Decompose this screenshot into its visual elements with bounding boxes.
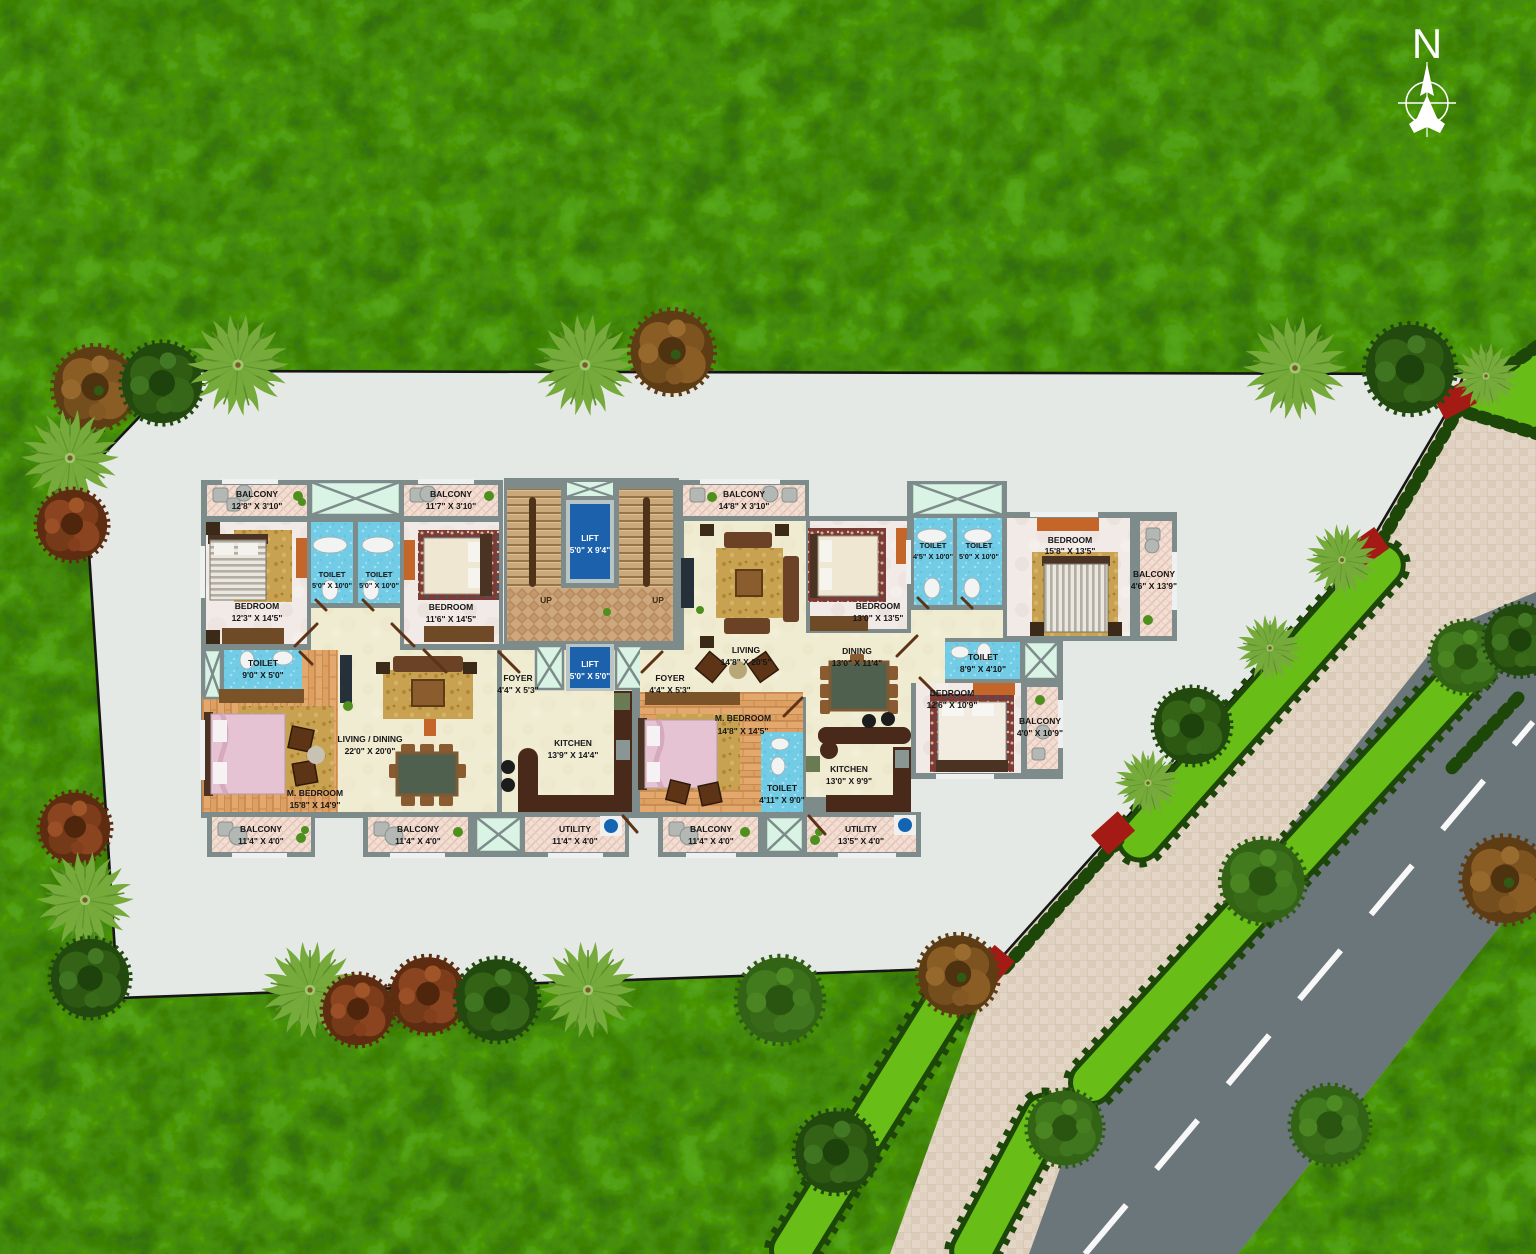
svg-text:22'0" X 20'0": 22'0" X 20'0" (345, 746, 396, 756)
svg-text:4'4" X 5'3": 4'4" X 5'3" (497, 685, 538, 695)
svg-text:KITCHEN: KITCHEN (830, 764, 868, 774)
svg-text:BALCONY: BALCONY (430, 489, 472, 499)
svg-text:11'7" X 3'10": 11'7" X 3'10" (426, 501, 476, 511)
svg-text:4'5" X 10'0": 4'5" X 10'0" (913, 552, 954, 561)
svg-text:LIFT: LIFT (581, 533, 599, 543)
svg-text:13'0" X 13'5": 13'0" X 13'5" (853, 613, 904, 623)
svg-text:4'11" X 9'0": 4'11" X 9'0" (759, 795, 805, 805)
svg-text:BALCONY: BALCONY (397, 824, 439, 834)
svg-text:4'4" X 5'3": 4'4" X 5'3" (649, 685, 690, 695)
svg-text:BEDROOM: BEDROOM (429, 602, 473, 612)
svg-text:11'4" X 4'0": 11'4" X 4'0" (688, 836, 734, 846)
svg-text:TOILET: TOILET (319, 570, 346, 579)
svg-text:5'0" X 5'0": 5'0" X 5'0" (570, 671, 610, 681)
svg-text:13'5" X 4'0": 13'5" X 4'0" (838, 836, 884, 846)
svg-text:15'8" X 13'5": 15'8" X 13'5" (1045, 546, 1096, 556)
svg-text:13'0" X 9'9": 13'0" X 9'9" (826, 776, 872, 786)
svg-text:15'8" X 14'9": 15'8" X 14'9" (290, 800, 341, 810)
svg-text:11'4" X 4'0": 11'4" X 4'0" (238, 836, 284, 846)
svg-text:14'8" X 20'5": 14'8" X 20'5" (721, 657, 772, 667)
svg-text:DINING: DINING (842, 646, 872, 656)
svg-text:BEDROOM: BEDROOM (1048, 535, 1092, 545)
svg-text:BALCONY: BALCONY (236, 489, 278, 499)
svg-text:BEDROOM: BEDROOM (856, 601, 900, 611)
svg-text:FOYER: FOYER (655, 673, 684, 683)
svg-text:BALCONY: BALCONY (240, 824, 282, 834)
svg-text:5'0" X 10'0": 5'0" X 10'0" (312, 581, 353, 590)
svg-text:LIVING / DINING: LIVING / DINING (337, 734, 403, 744)
svg-text:11'4" X 4'0": 11'4" X 4'0" (552, 836, 598, 846)
svg-text:LIFT: LIFT (581, 659, 599, 669)
svg-text:TOILET: TOILET (248, 658, 279, 668)
svg-text:M. BEDROOM: M. BEDROOM (715, 713, 771, 723)
svg-text:BEDROOM: BEDROOM (235, 601, 279, 611)
svg-text:TOILET: TOILET (966, 541, 993, 550)
svg-text:BALCONY: BALCONY (1019, 716, 1061, 726)
svg-text:5'0" X 10'0": 5'0" X 10'0" (359, 581, 400, 590)
svg-text:M. BEDROOM: M. BEDROOM (287, 788, 343, 798)
svg-text:12'3" X 14'5": 12'3" X 14'5" (232, 613, 283, 623)
svg-text:BALCONY: BALCONY (723, 489, 765, 499)
svg-text:13'0" X 11'4": 13'0" X 11'4" (832, 658, 882, 668)
svg-text:5'0" X 9'4": 5'0" X 9'4" (570, 545, 610, 555)
svg-text:KITCHEN: KITCHEN (554, 738, 592, 748)
svg-text:4'0" X 10'9": 4'0" X 10'9" (1017, 728, 1063, 738)
svg-text:14'8" X 3'10": 14'8" X 3'10" (719, 501, 770, 511)
svg-text:N: N (1412, 20, 1442, 67)
svg-text:TOILET: TOILET (366, 570, 393, 579)
svg-text:TOILET: TOILET (767, 783, 798, 793)
svg-text:13'9" X 14'4": 13'9" X 14'4" (548, 750, 599, 760)
svg-text:UTILITY: UTILITY (559, 824, 591, 834)
svg-text:BALCONY: BALCONY (1133, 569, 1175, 579)
svg-text:BEDROOM: BEDROOM (930, 688, 974, 698)
svg-text:11'4" X 4'0": 11'4" X 4'0" (395, 836, 441, 846)
svg-text:TOILET: TOILET (968, 652, 999, 662)
svg-text:UTILITY: UTILITY (845, 824, 877, 834)
svg-text:12'8" X 3'10": 12'8" X 3'10" (232, 501, 283, 511)
svg-text:12'6" X 10'9": 12'6" X 10'9" (927, 700, 978, 710)
svg-text:5'0" X 10'0": 5'0" X 10'0" (959, 552, 1000, 561)
svg-text:4'6" X 13'9": 4'6" X 13'9" (1131, 581, 1177, 591)
svg-text:LIVING: LIVING (732, 645, 761, 655)
svg-text:UP: UP (540, 595, 552, 605)
svg-text:9'0" X 5'0": 9'0" X 5'0" (242, 670, 283, 680)
svg-text:11'6" X 14'5": 11'6" X 14'5" (426, 614, 476, 624)
svg-text:FOYER: FOYER (503, 673, 532, 683)
svg-text:BALCONY: BALCONY (690, 824, 732, 834)
svg-text:TOILET: TOILET (920, 541, 947, 550)
svg-text:14'8" X 14'5": 14'8" X 14'5" (718, 726, 769, 736)
svg-text:UP: UP (652, 595, 664, 605)
svg-text:8'9" X 4'10": 8'9" X 4'10" (960, 664, 1006, 674)
